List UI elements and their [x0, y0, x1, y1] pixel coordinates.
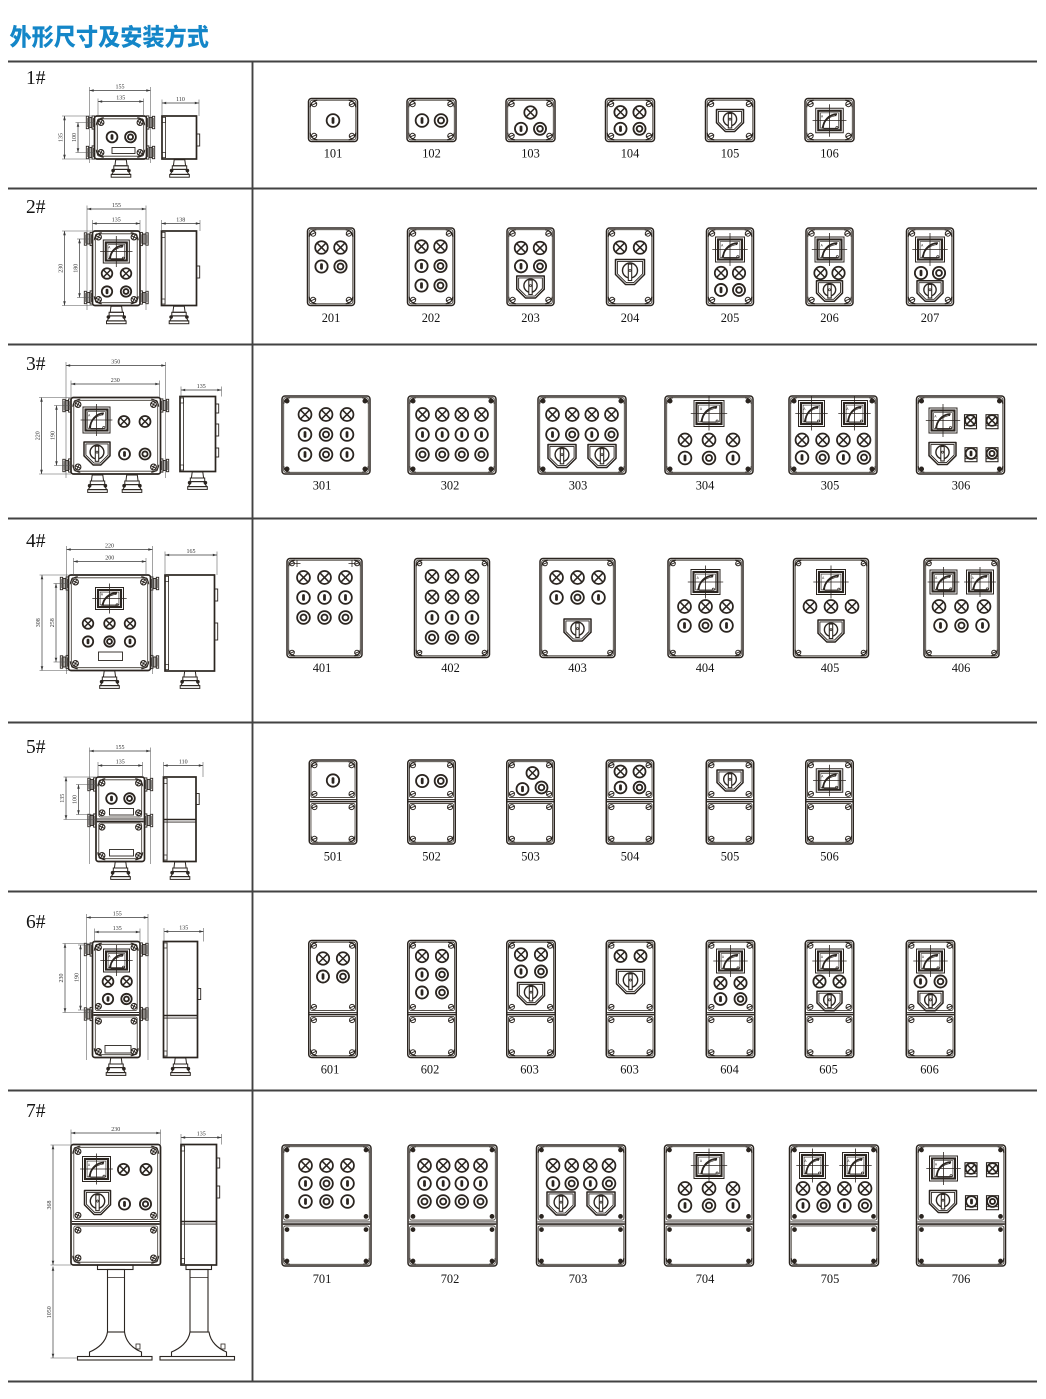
svg-text:703: 703: [569, 1272, 588, 1286]
svg-text:7#: 7#: [26, 1101, 46, 1122]
svg-text:404: 404: [696, 661, 715, 675]
svg-text:101: 101: [324, 147, 343, 161]
svg-text:135: 135: [60, 794, 66, 803]
svg-text:110: 110: [176, 97, 185, 103]
svg-text:601: 601: [321, 1063, 340, 1077]
svg-text:605: 605: [819, 1063, 838, 1077]
svg-text:1050: 1050: [47, 1306, 53, 1318]
svg-text:501: 501: [324, 850, 343, 864]
svg-text:301: 301: [313, 479, 332, 493]
svg-text:505: 505: [721, 850, 740, 864]
svg-text:602: 602: [421, 1063, 440, 1077]
svg-text:706: 706: [952, 1272, 971, 1286]
svg-text:220: 220: [105, 544, 114, 550]
svg-text:205: 205: [721, 311, 740, 325]
svg-text:6#: 6#: [26, 912, 46, 933]
svg-text:305: 305: [821, 479, 840, 493]
svg-text:207: 207: [921, 311, 940, 325]
svg-text:401: 401: [313, 661, 332, 675]
svg-text:190: 190: [74, 973, 80, 982]
svg-text:180: 180: [73, 264, 79, 273]
svg-text:135: 135: [58, 133, 64, 142]
svg-text:102: 102: [422, 147, 441, 161]
svg-text:202: 202: [422, 311, 441, 325]
svg-text:204: 204: [621, 311, 640, 325]
svg-text:203: 203: [521, 311, 540, 325]
svg-text:103: 103: [521, 147, 540, 161]
svg-text:135: 135: [116, 760, 125, 766]
svg-text:230: 230: [58, 264, 64, 273]
svg-text:402: 402: [441, 661, 460, 675]
svg-text:3#: 3#: [26, 354, 46, 375]
svg-text:135: 135: [197, 384, 206, 390]
svg-text:603: 603: [520, 1063, 539, 1077]
svg-text:304: 304: [696, 479, 715, 493]
svg-text:155: 155: [116, 745, 125, 751]
svg-text:406: 406: [952, 661, 971, 675]
svg-text:308: 308: [36, 618, 42, 627]
svg-text:350: 350: [111, 360, 120, 366]
svg-text:704: 704: [696, 1272, 715, 1286]
svg-text:190: 190: [50, 431, 56, 440]
svg-text:230: 230: [59, 974, 65, 983]
svg-text:100: 100: [72, 795, 78, 804]
svg-text:135: 135: [179, 926, 188, 932]
svg-text:506: 506: [820, 850, 839, 864]
svg-text:503: 503: [521, 850, 540, 864]
svg-text:135: 135: [113, 926, 122, 932]
svg-text:405: 405: [821, 661, 840, 675]
svg-text:603: 603: [620, 1063, 639, 1077]
svg-text:155: 155: [116, 85, 125, 91]
svg-text:368: 368: [47, 1201, 53, 1210]
svg-text:258: 258: [50, 618, 56, 627]
svg-text:230: 230: [111, 1127, 120, 1133]
svg-text:502: 502: [422, 850, 441, 864]
svg-text:606: 606: [920, 1063, 939, 1077]
svg-text:403: 403: [568, 661, 587, 675]
svg-text:504: 504: [621, 850, 640, 864]
svg-text:135: 135: [197, 1132, 206, 1138]
svg-text:100: 100: [72, 133, 78, 142]
svg-text:5#: 5#: [26, 737, 46, 758]
svg-text:110: 110: [179, 760, 188, 766]
svg-text:306: 306: [952, 479, 971, 493]
svg-text:135: 135: [116, 96, 125, 102]
svg-text:705: 705: [821, 1272, 840, 1286]
svg-text:135: 135: [112, 218, 121, 224]
svg-text:155: 155: [113, 912, 122, 918]
svg-text:4#: 4#: [26, 531, 46, 552]
svg-text:105: 105: [721, 147, 740, 161]
svg-text:104: 104: [621, 147, 640, 161]
svg-text:303: 303: [569, 479, 588, 493]
svg-text:302: 302: [441, 479, 460, 493]
svg-text:2#: 2#: [26, 197, 46, 218]
svg-text:165: 165: [187, 549, 196, 555]
svg-text:200: 200: [105, 556, 114, 562]
svg-text:106: 106: [820, 147, 839, 161]
svg-text:230: 230: [111, 378, 120, 384]
svg-text:206: 206: [820, 311, 839, 325]
svg-text:201: 201: [322, 311, 341, 325]
svg-text:1#: 1#: [26, 68, 46, 89]
svg-text:138: 138: [176, 218, 185, 224]
svg-text:604: 604: [720, 1063, 739, 1077]
svg-text:155: 155: [112, 203, 121, 209]
svg-text:702: 702: [441, 1272, 460, 1286]
svg-text:701: 701: [313, 1272, 332, 1286]
svg-text:220: 220: [35, 431, 41, 440]
